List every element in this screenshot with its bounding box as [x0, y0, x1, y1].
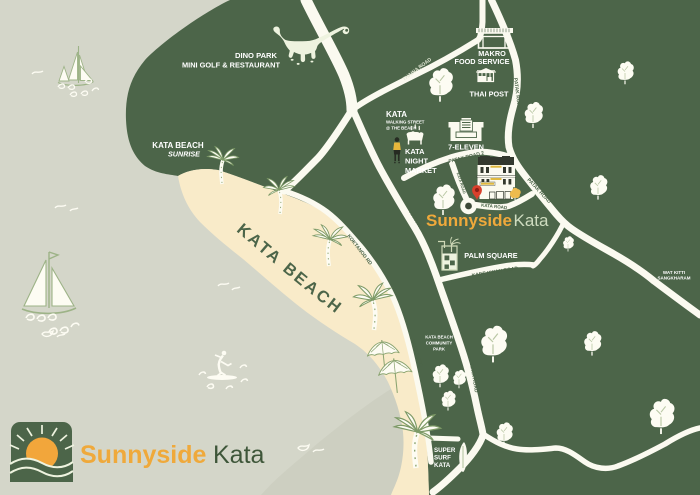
- svg-text:KATA: KATA: [386, 110, 407, 119]
- svg-text:7-ELEVEN: 7-ELEVEN: [448, 143, 484, 152]
- svg-text:PARK: PARK: [433, 347, 446, 352]
- svg-text:Sunnyside: Sunnyside: [80, 441, 207, 469]
- svg-text:Kata: Kata: [213, 441, 265, 469]
- svg-text:WALKING STREET: WALKING STREET: [386, 120, 425, 125]
- svg-text:DINO PARK: DINO PARK: [235, 51, 278, 60]
- svg-text:SUPER: SUPER: [434, 447, 456, 454]
- svg-text:THAI POST: THAI POST: [470, 90, 509, 99]
- svg-text:MARKET: MARKET: [405, 166, 437, 175]
- svg-text:SURF: SURF: [434, 455, 451, 462]
- svg-text:KATA BEACH: KATA BEACH: [425, 335, 453, 340]
- svg-text:@ THE BEACH: @ THE BEACH: [386, 126, 416, 131]
- svg-text:MINI GOLF & RESTAURANT: MINI GOLF & RESTAURANT: [182, 61, 280, 70]
- svg-text:Sunnyside: Sunnyside: [426, 211, 512, 230]
- svg-text:COMMUNITY: COMMUNITY: [426, 341, 453, 346]
- svg-text:NIGHT: NIGHT: [405, 157, 428, 166]
- svg-text:SANGKHARAM: SANGKHARAM: [658, 276, 691, 281]
- svg-text:KATA: KATA: [434, 462, 451, 469]
- svg-text:PALM SQUARE: PALM SQUARE: [464, 251, 518, 260]
- svg-text:KATA: KATA: [405, 147, 425, 156]
- svg-text:Kata: Kata: [514, 211, 550, 230]
- svg-text:SUNRISE: SUNRISE: [168, 150, 200, 159]
- svg-text:FOOD SERVICE: FOOD SERVICE: [454, 57, 509, 66]
- svg-text:WAT KITTI: WAT KITTI: [663, 270, 685, 275]
